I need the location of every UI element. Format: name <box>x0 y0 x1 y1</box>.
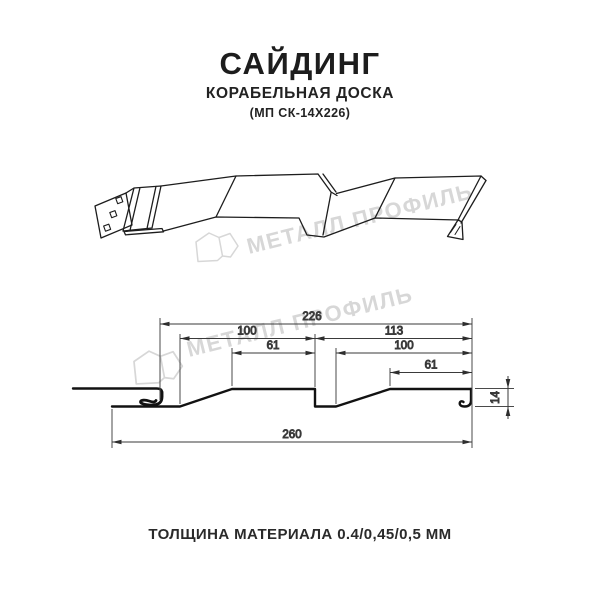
dim-right-panel-width: 113 <box>315 326 472 339</box>
footer: ТОЛЩИНА МАТЕРИАЛА 0.4/0,45/0,5 ММ <box>0 526 600 544</box>
watermark-lower: МЕТАЛЛ ПРОФИЛЬ <box>134 281 416 384</box>
dimension-label: 14 <box>490 391 502 404</box>
lock-hook <box>141 392 163 405</box>
dim-right-panel-flat: 61 <box>390 360 472 373</box>
dimension-label: 100 <box>394 340 413 352</box>
product-spec-sheet: САЙДИНГ КОРАБЕЛЬНАЯ ДОСКА (МП СК-14Х226)… <box>0 0 600 600</box>
dimension-label: 100 <box>237 326 256 338</box>
dimension-label: 226 <box>302 311 321 323</box>
profile-main-line <box>112 389 471 407</box>
watermark-brand-text: МЕТАЛЛ ПРОФИЛЬ <box>184 281 415 361</box>
nail-strip-hole <box>110 211 117 218</box>
thickness-note: ТОЛЩИНА МАТЕРИАЛА 0.4/0,45/0,5 ММ <box>148 526 451 543</box>
dim-right-panel-inner: 100 <box>336 340 472 353</box>
technical-drawing: МЕТАЛЛ ПРОФИЛЬ МЕТАЛЛ ПРОФИЛЬ <box>0 0 600 600</box>
extension-lines <box>112 318 514 448</box>
dimension-label: 61 <box>267 340 280 352</box>
dim-total-width: 260 <box>112 429 472 442</box>
dim-profile-height: 14 <box>490 376 508 419</box>
metal-profil-logo-icon <box>196 233 238 262</box>
lock-band <box>123 186 161 231</box>
metal-profil-logo-icon <box>134 351 182 384</box>
left-flange-line <box>73 389 162 398</box>
dimension-label: 61 <box>425 360 438 372</box>
watermark-brand-text: МЕТАЛЛ ПРОФИЛЬ <box>244 178 475 258</box>
nail-strip-hole <box>116 197 123 204</box>
profile-cross-section <box>73 389 471 407</box>
dimension-annotations: 226 100 113 61 100 <box>112 311 514 448</box>
dim-overall-top: 226 <box>160 311 472 324</box>
dimension-label: 260 <box>282 429 301 441</box>
dimension-label: 113 <box>385 326 403 338</box>
right-edge-hook <box>460 389 471 407</box>
nail-strip-hole <box>104 224 111 231</box>
